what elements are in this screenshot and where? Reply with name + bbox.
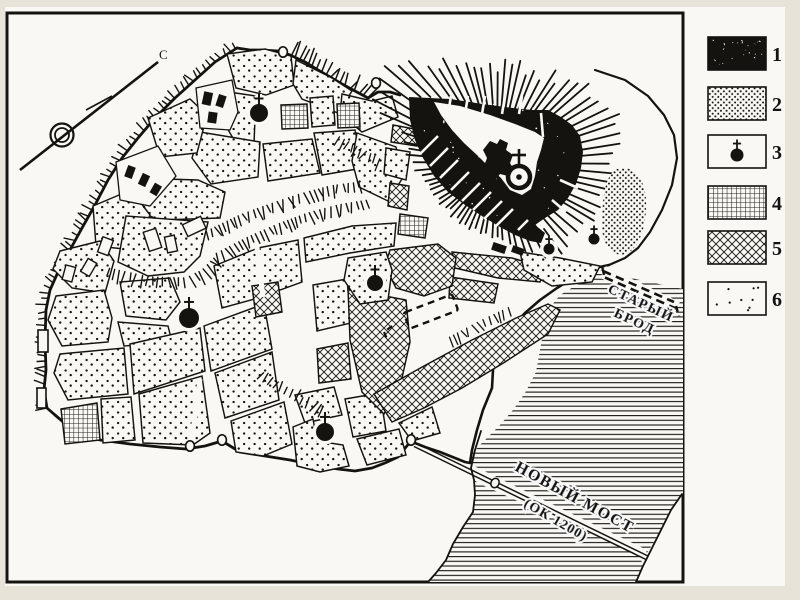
svg-text:5: 5 xyxy=(772,238,782,260)
svg-text:4: 4 xyxy=(772,193,782,215)
svg-text:3: 3 xyxy=(772,142,782,164)
svg-text:6: 6 xyxy=(772,289,782,311)
svg-text:1: 1 xyxy=(772,44,782,66)
svg-text:С: С xyxy=(159,47,168,62)
svg-text:2: 2 xyxy=(772,94,782,116)
